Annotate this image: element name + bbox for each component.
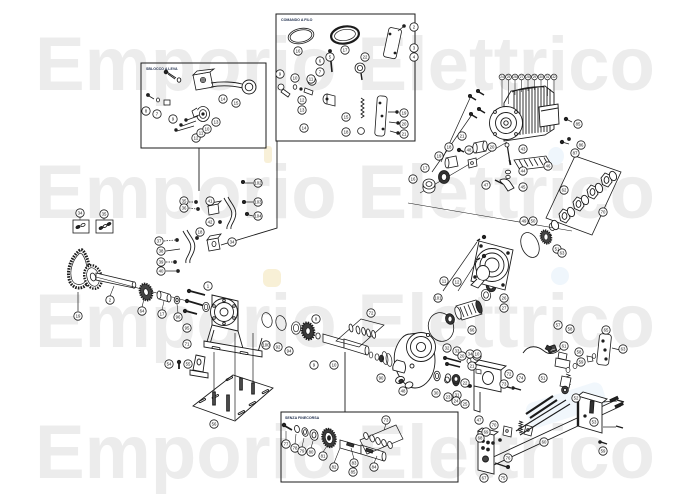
svg-text:21: 21	[470, 364, 475, 369]
svg-text:47: 47	[484, 183, 489, 188]
svg-text:80: 80	[309, 450, 314, 455]
svg-text:58: 58	[568, 327, 573, 332]
svg-text:81: 81	[321, 454, 326, 459]
svg-text:11: 11	[442, 279, 447, 284]
svg-text:22: 22	[363, 55, 368, 60]
svg-text:34: 34	[468, 352, 473, 357]
svg-text:10: 10	[332, 363, 337, 368]
svg-text:41: 41	[208, 199, 213, 204]
svg-text:49: 49	[522, 219, 527, 224]
svg-text:76: 76	[506, 456, 511, 461]
svg-text:100: 100	[262, 343, 270, 348]
svg-text:54: 54	[167, 362, 172, 367]
svg-text:95: 95	[185, 326, 190, 331]
svg-text:24: 24	[454, 399, 459, 404]
svg-text:35: 35	[182, 199, 187, 204]
svg-text:42: 42	[208, 220, 213, 225]
svg-text:SENZA FINECORSA: SENZA FINECORSA	[285, 416, 320, 420]
svg-text:18: 18	[447, 145, 452, 150]
svg-text:14: 14	[221, 97, 226, 102]
svg-text:77: 77	[284, 442, 289, 447]
svg-text:13: 13	[214, 120, 219, 125]
svg-text:60: 60	[542, 440, 547, 445]
svg-text:58: 58	[577, 350, 582, 355]
svg-text:47: 47	[477, 418, 482, 423]
svg-text:18: 18	[198, 230, 203, 235]
svg-text:90: 90	[379, 376, 384, 381]
svg-text:72: 72	[369, 311, 374, 316]
svg-text:78: 78	[293, 446, 298, 451]
svg-text:63: 63	[560, 251, 565, 256]
svg-text:94: 94	[287, 349, 292, 354]
svg-text:104: 104	[254, 214, 262, 219]
svg-text:29: 29	[533, 75, 537, 79]
svg-text:71: 71	[185, 342, 190, 347]
svg-text:61: 61	[562, 344, 567, 349]
svg-text:35: 35	[102, 212, 107, 217]
svg-text:30: 30	[434, 391, 439, 396]
svg-text:69: 69	[484, 430, 489, 435]
svg-text:Emporio Elettrico: Emporio Elettrico	[35, 22, 655, 107]
svg-text:103: 103	[254, 200, 262, 205]
svg-text:59: 59	[601, 449, 606, 454]
svg-text:70: 70	[601, 210, 606, 215]
svg-text:66: 66	[470, 328, 475, 333]
svg-text:51: 51	[541, 376, 546, 381]
svg-text:43: 43	[521, 147, 526, 152]
svg-text:96: 96	[176, 315, 181, 320]
svg-text:44: 44	[521, 169, 526, 174]
svg-text:12: 12	[455, 280, 460, 285]
svg-text:92: 92	[276, 345, 281, 350]
svg-text:31: 31	[546, 75, 550, 79]
svg-text:62: 62	[562, 188, 567, 193]
svg-text:40: 40	[159, 269, 164, 274]
svg-text:64: 64	[140, 309, 145, 314]
svg-text:65: 65	[604, 328, 609, 333]
svg-text:37: 37	[157, 239, 162, 244]
svg-text:17: 17	[160, 312, 165, 317]
svg-text:87: 87	[573, 151, 578, 156]
svg-text:53: 53	[592, 420, 597, 425]
svg-text:25: 25	[507, 75, 511, 79]
svg-text:46: 46	[546, 164, 551, 169]
svg-text:74: 74	[519, 376, 524, 381]
svg-text:13: 13	[300, 108, 305, 113]
svg-text:85: 85	[351, 470, 356, 475]
svg-text:73: 73	[502, 382, 507, 387]
svg-text:21: 21	[402, 132, 407, 137]
svg-text:30: 30	[539, 75, 543, 79]
svg-text:SBLOCCO A LEVA: SBLOCCO A LEVA	[146, 67, 178, 71]
svg-text:28: 28	[526, 75, 530, 79]
svg-text:16: 16	[411, 177, 416, 182]
svg-text:12: 12	[300, 98, 305, 103]
svg-text:22: 22	[463, 381, 468, 386]
svg-text:23: 23	[446, 395, 451, 400]
svg-text:COMANDO A FILO: COMANDO A FILO	[281, 18, 313, 22]
svg-text:20: 20	[402, 122, 407, 127]
svg-text:Emporio Elettrico: Emporio Elettrico	[35, 279, 655, 364]
svg-text:86: 86	[579, 143, 584, 148]
svg-text:75: 75	[501, 476, 506, 481]
svg-text:48: 48	[401, 389, 406, 394]
svg-text:19: 19	[437, 154, 442, 159]
svg-text:70: 70	[492, 423, 497, 428]
svg-text:24: 24	[500, 75, 504, 79]
svg-text:50: 50	[531, 219, 536, 224]
svg-text:17: 17	[423, 166, 428, 171]
svg-text:15: 15	[344, 115, 349, 120]
svg-text:18: 18	[344, 130, 349, 135]
svg-text:10: 10	[475, 352, 480, 357]
svg-text:14: 14	[302, 126, 307, 131]
svg-text:52: 52	[574, 396, 579, 401]
svg-text:72: 72	[507, 372, 512, 377]
svg-text:19: 19	[402, 111, 407, 116]
svg-text:59: 59	[579, 360, 584, 365]
svg-text:63: 63	[621, 347, 626, 352]
svg-text:83: 83	[352, 461, 357, 466]
svg-text:57: 57	[556, 323, 561, 328]
svg-text:67: 67	[482, 476, 487, 481]
svg-text:32: 32	[445, 346, 450, 351]
svg-text:102: 102	[254, 181, 262, 186]
svg-text:25: 25	[463, 402, 468, 407]
svg-text:11: 11	[309, 77, 314, 82]
svg-text:21: 21	[460, 134, 465, 139]
svg-text:20: 20	[490, 145, 495, 150]
svg-text:36: 36	[182, 206, 187, 211]
svg-text:39: 39	[159, 260, 164, 265]
svg-text:55: 55	[186, 362, 191, 367]
svg-text:26: 26	[502, 296, 507, 301]
svg-text:82: 82	[332, 465, 337, 470]
svg-text:32: 32	[552, 75, 556, 79]
svg-text:45: 45	[521, 185, 526, 190]
svg-text:10: 10	[293, 76, 298, 81]
svg-text:56: 56	[212, 422, 217, 427]
svg-text:26: 26	[513, 75, 517, 79]
svg-text:34: 34	[78, 211, 83, 216]
svg-text:84: 84	[372, 465, 377, 470]
svg-text:10: 10	[205, 127, 210, 132]
svg-text:17: 17	[343, 48, 348, 53]
svg-text:20: 20	[460, 354, 465, 359]
svg-text:19: 19	[76, 314, 81, 319]
svg-text:79: 79	[300, 449, 305, 454]
svg-text:34: 34	[230, 240, 235, 245]
svg-text:101: 101	[434, 296, 442, 301]
svg-text:48: 48	[467, 148, 472, 153]
svg-text:27: 27	[502, 306, 507, 311]
svg-text:16: 16	[296, 49, 301, 54]
svg-text:15: 15	[234, 101, 239, 106]
svg-text:27: 27	[520, 75, 524, 79]
svg-text:73: 73	[384, 418, 389, 423]
svg-text:68: 68	[478, 436, 483, 441]
svg-text:38: 38	[159, 249, 164, 254]
svg-text:85: 85	[576, 122, 581, 127]
